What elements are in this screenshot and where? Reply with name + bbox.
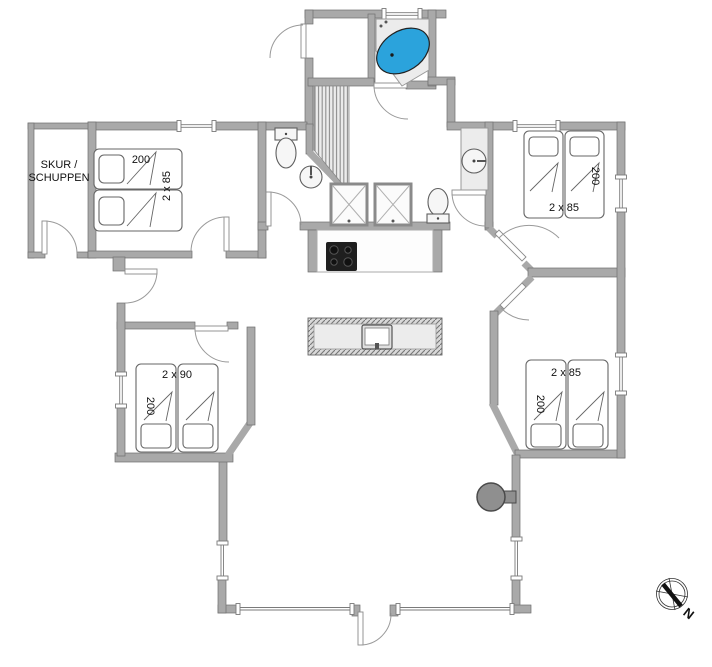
window-bedroom-top-left xyxy=(177,121,216,132)
door-living-west xyxy=(125,269,157,303)
shower-left xyxy=(331,184,367,225)
shower-right xyxy=(375,184,411,225)
floor-plan: 200 2 x 85 2 x 85 200 2 x 90 200 xyxy=(0,0,712,667)
floor-plan-svg: 200 2 x 85 2 x 85 200 2 x 90 200 xyxy=(0,0,712,667)
bathtub xyxy=(368,19,438,86)
bed-width-label: 2 x 85 xyxy=(161,171,173,201)
window-bedroom-top-right xyxy=(513,121,560,132)
bed-double-top-left: 200 2 x 85 xyxy=(94,149,182,231)
bed-length-label: 200 xyxy=(534,395,546,413)
bed-twin-bottom-right: 2 x 85 200 xyxy=(526,360,608,449)
bed-length-label: 200 xyxy=(144,397,156,415)
shed-label-line2: SCHUPPEN xyxy=(28,172,89,184)
shed-label-line1: SKUR / xyxy=(41,159,79,171)
door-bedroom-top-right xyxy=(495,225,559,261)
door-shed xyxy=(42,221,77,254)
bathtub-drain xyxy=(390,53,393,56)
window-southwest xyxy=(217,541,228,580)
bed-length-label: 200 xyxy=(589,167,601,185)
bathtub-tap xyxy=(380,25,383,28)
compass-north-label: N xyxy=(680,605,697,623)
bed-width-label: 2 x 85 xyxy=(549,202,579,214)
bed-width-label: 2 x 85 xyxy=(551,367,581,379)
window-southeast xyxy=(511,537,522,580)
bed-length-label: 200 xyxy=(132,154,150,166)
door-wc-left xyxy=(266,192,301,226)
door-bedroom-top-left xyxy=(191,217,229,252)
window-south-right xyxy=(396,604,514,615)
toilet-left xyxy=(275,128,297,168)
door-hall-east xyxy=(452,190,486,226)
window-bedroom-bottom-left xyxy=(116,372,127,408)
kitchen-counter xyxy=(317,230,433,272)
door-bathroom xyxy=(374,83,408,119)
door-bedroom-bottom-left xyxy=(195,326,229,362)
windows xyxy=(116,9,627,615)
toilet-right xyxy=(427,189,449,224)
wood-stove xyxy=(477,483,516,511)
window-south-left xyxy=(236,604,354,615)
cooktop xyxy=(326,242,357,271)
door-front-entrance xyxy=(270,24,306,58)
door-terrace-south xyxy=(358,612,391,645)
window-east-bottom xyxy=(616,353,627,395)
bed-twin-bottom-left: 2 x 90 200 xyxy=(136,364,218,452)
window-bathroom-top xyxy=(382,9,422,20)
bed-twin-top-right: 2 x 85 200 xyxy=(524,131,604,218)
tv xyxy=(362,325,392,349)
door-bedroom-bottom-right xyxy=(500,283,529,320)
washbasin-left xyxy=(300,166,322,188)
beds: 200 2 x 85 2 x 85 200 2 x 90 200 xyxy=(94,131,608,452)
washbasin-right xyxy=(461,128,488,190)
window-east-top xyxy=(616,175,627,212)
dining-table xyxy=(308,318,442,355)
bed-width-label: 2 x 90 xyxy=(162,369,192,381)
compass-rose: N xyxy=(656,578,697,622)
room-labels: SKUR / SCHUPPEN xyxy=(28,159,89,184)
